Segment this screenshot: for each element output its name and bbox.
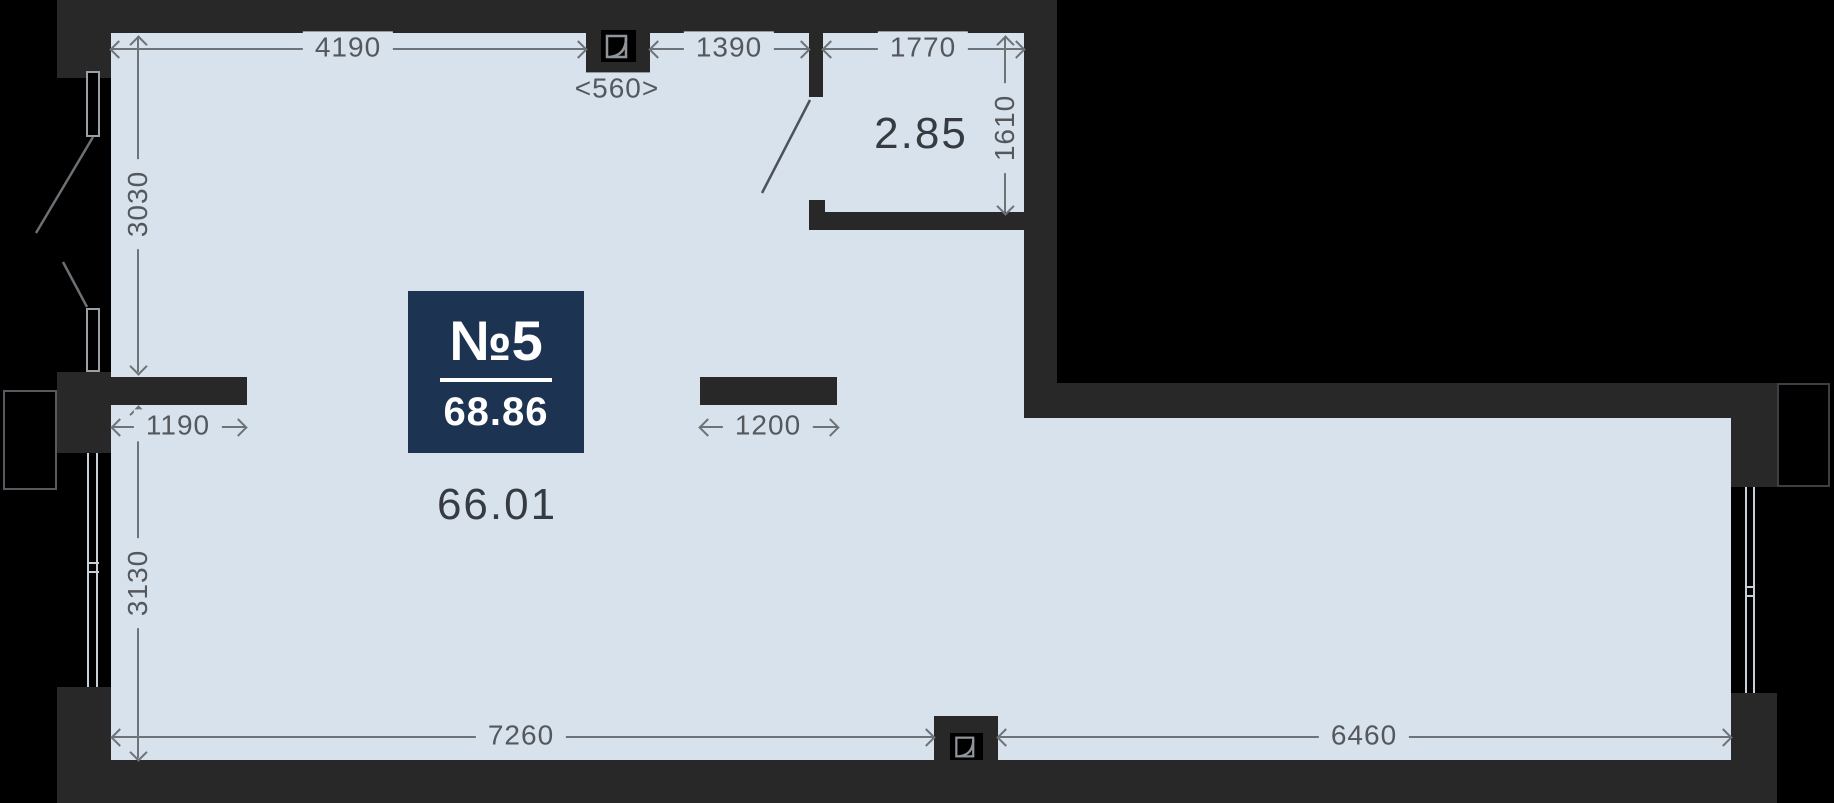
dim-6460: 6460 [1319,719,1409,751]
floor-plan: 4190 <560> 1390 1770 1610 3030 3130 1190… [0,0,1834,803]
dim-7260: 7260 [476,719,566,751]
room-area-living: 66.01 [437,483,557,527]
room-area-bathroom: 2.85 [874,112,968,156]
unit-number: №5 [449,313,543,369]
dim-1190: 1190 [134,409,222,441]
dim-1390: 1390 [684,31,774,63]
dim-1770: 1770 [878,31,968,63]
badge-divider [440,378,552,382]
dim-4190: 4190 [303,31,393,63]
dim-1610: 1610 [989,83,1021,173]
balcony-door-swing [63,262,87,307]
bathroom-door-swing [762,100,810,193]
balcony-door-swing [36,137,93,233]
unit-badge: №5 68.86 [408,291,584,453]
dim-1200: 1200 [723,409,813,441]
dim-560: <560> [571,72,663,104]
dim-3030: 3030 [122,159,154,249]
unit-total-area: 68.86 [443,392,548,432]
dim-3130: 3130 [122,538,154,628]
